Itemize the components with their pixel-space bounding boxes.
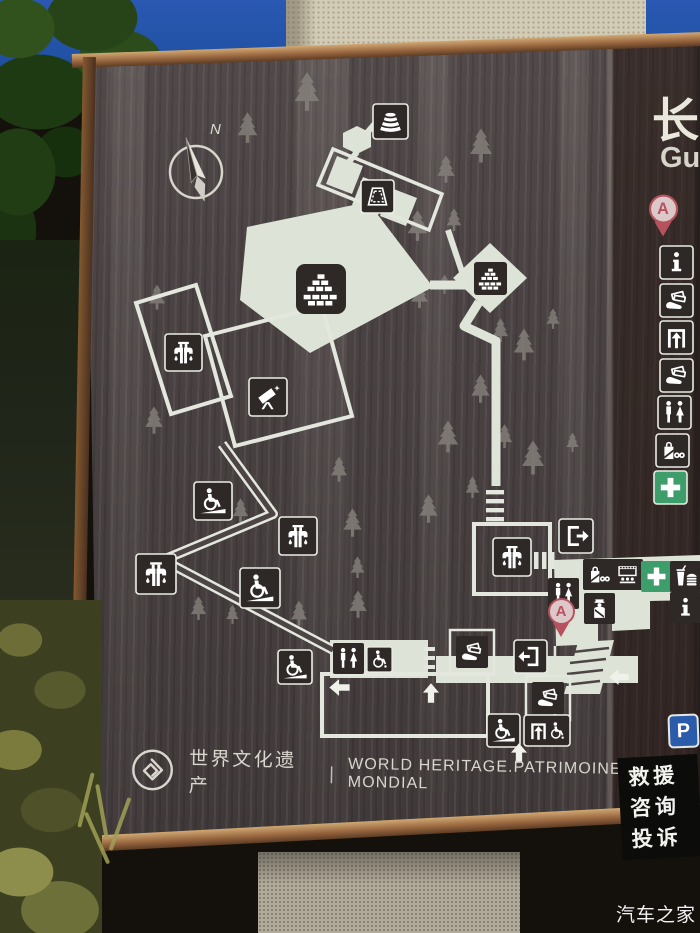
wheelchair-ramp-icon [194, 482, 232, 520]
plaza-outline [322, 674, 488, 736]
parking-sign: P [667, 713, 699, 748]
photo-watermark: 汽车之家 [616, 900, 696, 927]
arrow-up-icon [423, 683, 439, 703]
tickets-icon [660, 284, 693, 317]
exit-door-icon [559, 519, 593, 553]
rescue-info-panel: 救援 咨询 投诉 [617, 754, 700, 860]
marker-a-label: A [657, 200, 669, 218]
world-heritage-line: 世界文化遗产 | WORLD HERITAGE.PATRIMOINE MONDI… [130, 745, 700, 806]
bushes [0, 600, 102, 933]
map-grounds [240, 126, 700, 694]
telescope-icon [249, 378, 287, 416]
water-tap-icon [165, 334, 202, 371]
tickets-icon [660, 359, 693, 392]
location-marker-a: A [546, 598, 576, 637]
tickets-icon [456, 636, 488, 668]
world-heritage-logo [130, 747, 176, 794]
compass-rose: N [170, 121, 222, 204]
wheelchair-ramp-icon [278, 650, 312, 684]
beacon-tower-icon [373, 104, 408, 139]
wheelchair-ramp-icon [240, 568, 280, 608]
entrance-gate-icon [660, 321, 693, 354]
toilets-icon [658, 396, 691, 429]
wheelchair-ramp-icon [487, 714, 520, 747]
marker-a-label: A [556, 603, 567, 620]
accessible-toilet-icon [367, 647, 392, 672]
water-tap-icon [279, 517, 317, 555]
cinema-icon [612, 559, 643, 590]
great-wall-icon [296, 264, 346, 314]
rescue-line: 咨询 [629, 790, 700, 825]
information-icon [660, 246, 693, 279]
water-tap-icon [493, 538, 531, 576]
tickets-icon [532, 682, 564, 714]
marker-tail [553, 623, 569, 637]
first-aid-icon [641, 561, 672, 592]
compass-north-label: N [210, 121, 221, 138]
side-title-cn: 长 [652, 82, 699, 151]
information-icon [670, 592, 700, 623]
heritage-divider: | [329, 763, 334, 784]
entry-door-icon [514, 640, 547, 673]
legend-location-marker-a: A [647, 194, 679, 236]
stage-icon [361, 180, 394, 213]
legend-column [654, 246, 693, 504]
shop-icon [656, 434, 689, 467]
marker-tail [654, 221, 671, 236]
entrance-accessible-icon [524, 715, 570, 746]
toilets-icon [333, 643, 364, 674]
food-court-icon [670, 561, 700, 592]
first-aid-icon [654, 471, 687, 504]
parking-label: P [676, 719, 690, 742]
photo-of-map-signboard: N [0, 0, 700, 933]
great-wall-small-icon [474, 262, 507, 295]
water-tap-icon [136, 554, 176, 594]
rescue-line: 救援 [627, 759, 699, 794]
shop-icon [583, 559, 614, 590]
security-post-icon [584, 593, 615, 624]
rescue-line: 投诉 [631, 821, 700, 856]
heritage-text-cn: 世界文化遗产 [189, 744, 316, 800]
arrow-left-icon [329, 679, 349, 696]
side-title-en: Gu [660, 142, 700, 175]
